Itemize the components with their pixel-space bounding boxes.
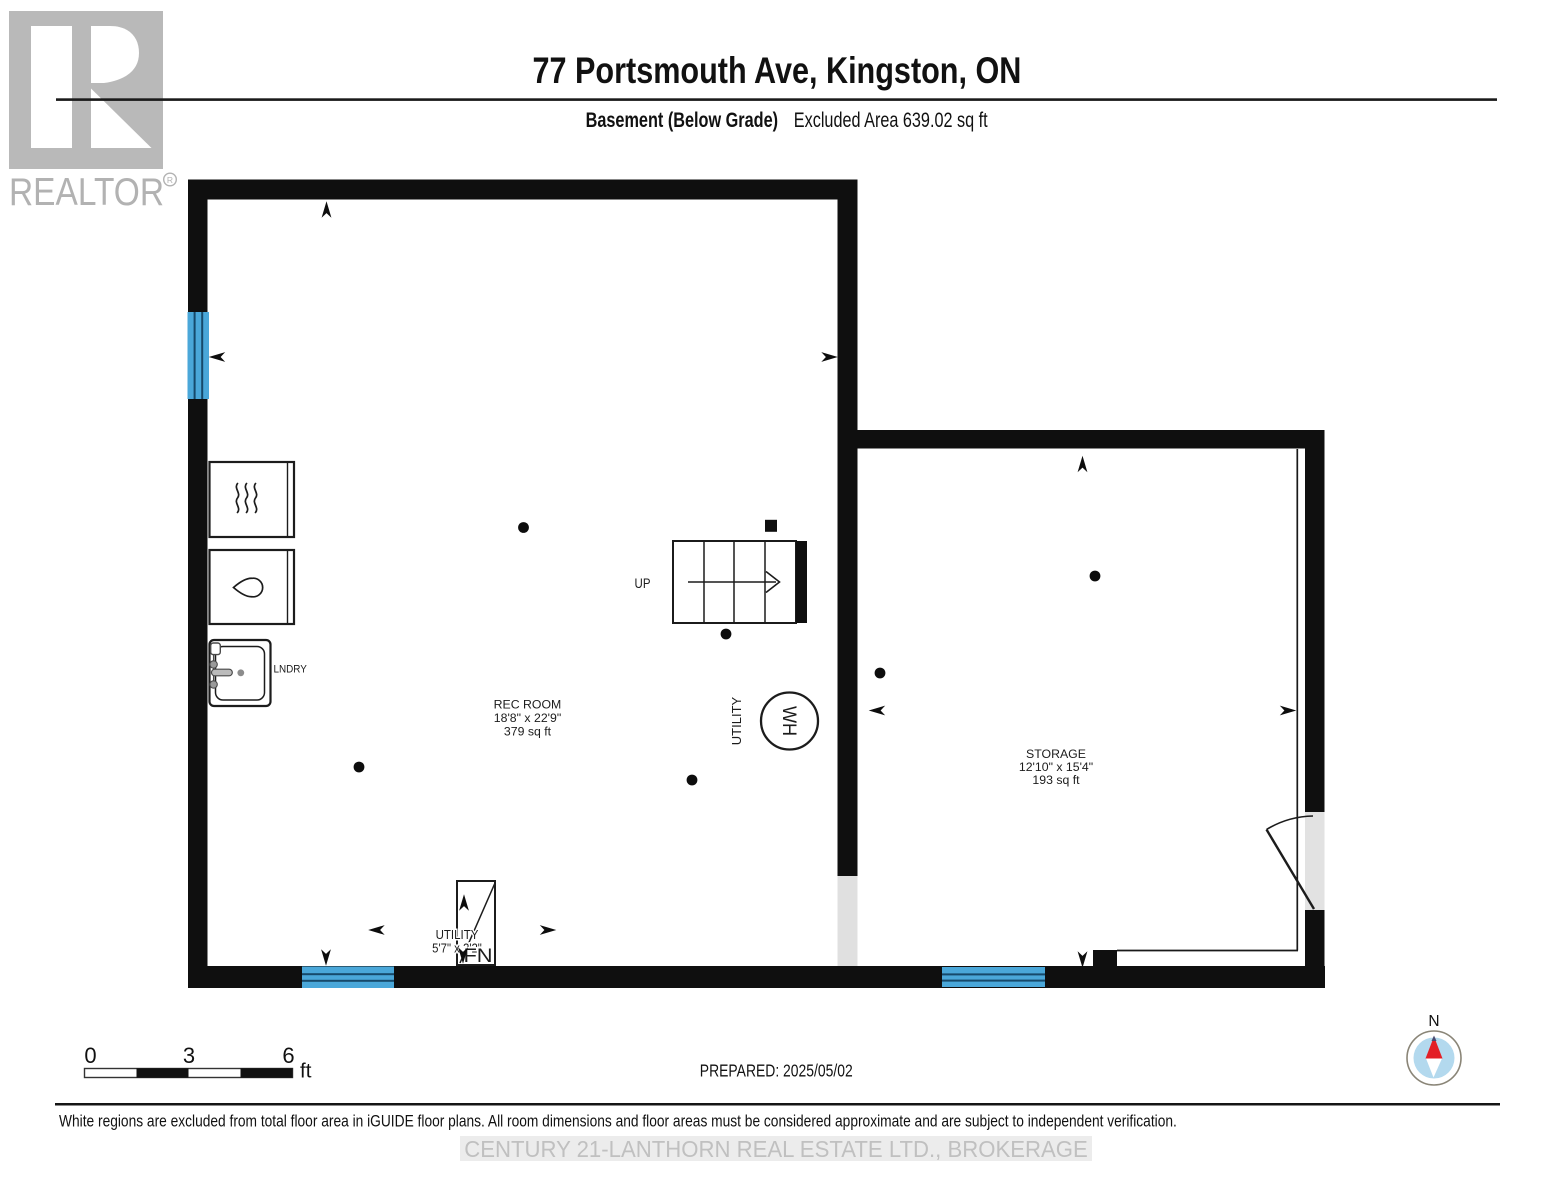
svg-text:UTILITY: UTILITY — [436, 928, 479, 943]
svg-text:Excluded Area 639.02 sq ft: Excluded Area 639.02 sq ft — [794, 108, 989, 131]
svg-text:ft: ft — [300, 1060, 312, 1083]
svg-text:CENTURY 21-LANTHORN REAL ESTAT: CENTURY 21-LANTHORN REAL ESTATE LTD., BR… — [464, 1135, 1088, 1162]
svg-text:379 sq ft: 379 sq ft — [504, 725, 552, 739]
svg-text:18'8" x 22'9": 18'8" x 22'9" — [494, 711, 561, 725]
svg-text:UP: UP — [635, 576, 651, 591]
svg-text:6: 6 — [282, 1043, 294, 1068]
svg-text:LNDRY: LNDRY — [274, 664, 307, 676]
svg-text:Basement (Below Grade): Basement (Below Grade) — [586, 108, 778, 131]
svg-text:UTILITY: UTILITY — [729, 696, 744, 745]
svg-text:12'10" x 15'4": 12'10" x 15'4" — [1019, 760, 1093, 774]
svg-text:0: 0 — [84, 1043, 96, 1068]
svg-text:REALTOR: REALTOR — [9, 171, 164, 214]
svg-text:REC ROOM: REC ROOM — [494, 698, 562, 712]
svg-text:R: R — [167, 175, 173, 185]
svg-text:N: N — [1428, 1013, 1439, 1030]
svg-text:FN: FN — [463, 945, 492, 966]
svg-text:STORAGE: STORAGE — [1026, 747, 1086, 761]
svg-text:PREPARED: 2025/05/02: PREPARED: 2025/05/02 — [700, 1062, 853, 1081]
svg-text:WH: WH — [779, 706, 801, 736]
svg-text:White regions are excluded fro: White regions are excluded from total fl… — [59, 1112, 1177, 1131]
svg-text:77 Portsmouth Ave, Kingston, O: 77 Portsmouth Ave, Kingston, ON — [533, 50, 1022, 91]
svg-text:3: 3 — [183, 1043, 195, 1068]
svg-text:193 sq ft: 193 sq ft — [1032, 773, 1080, 787]
